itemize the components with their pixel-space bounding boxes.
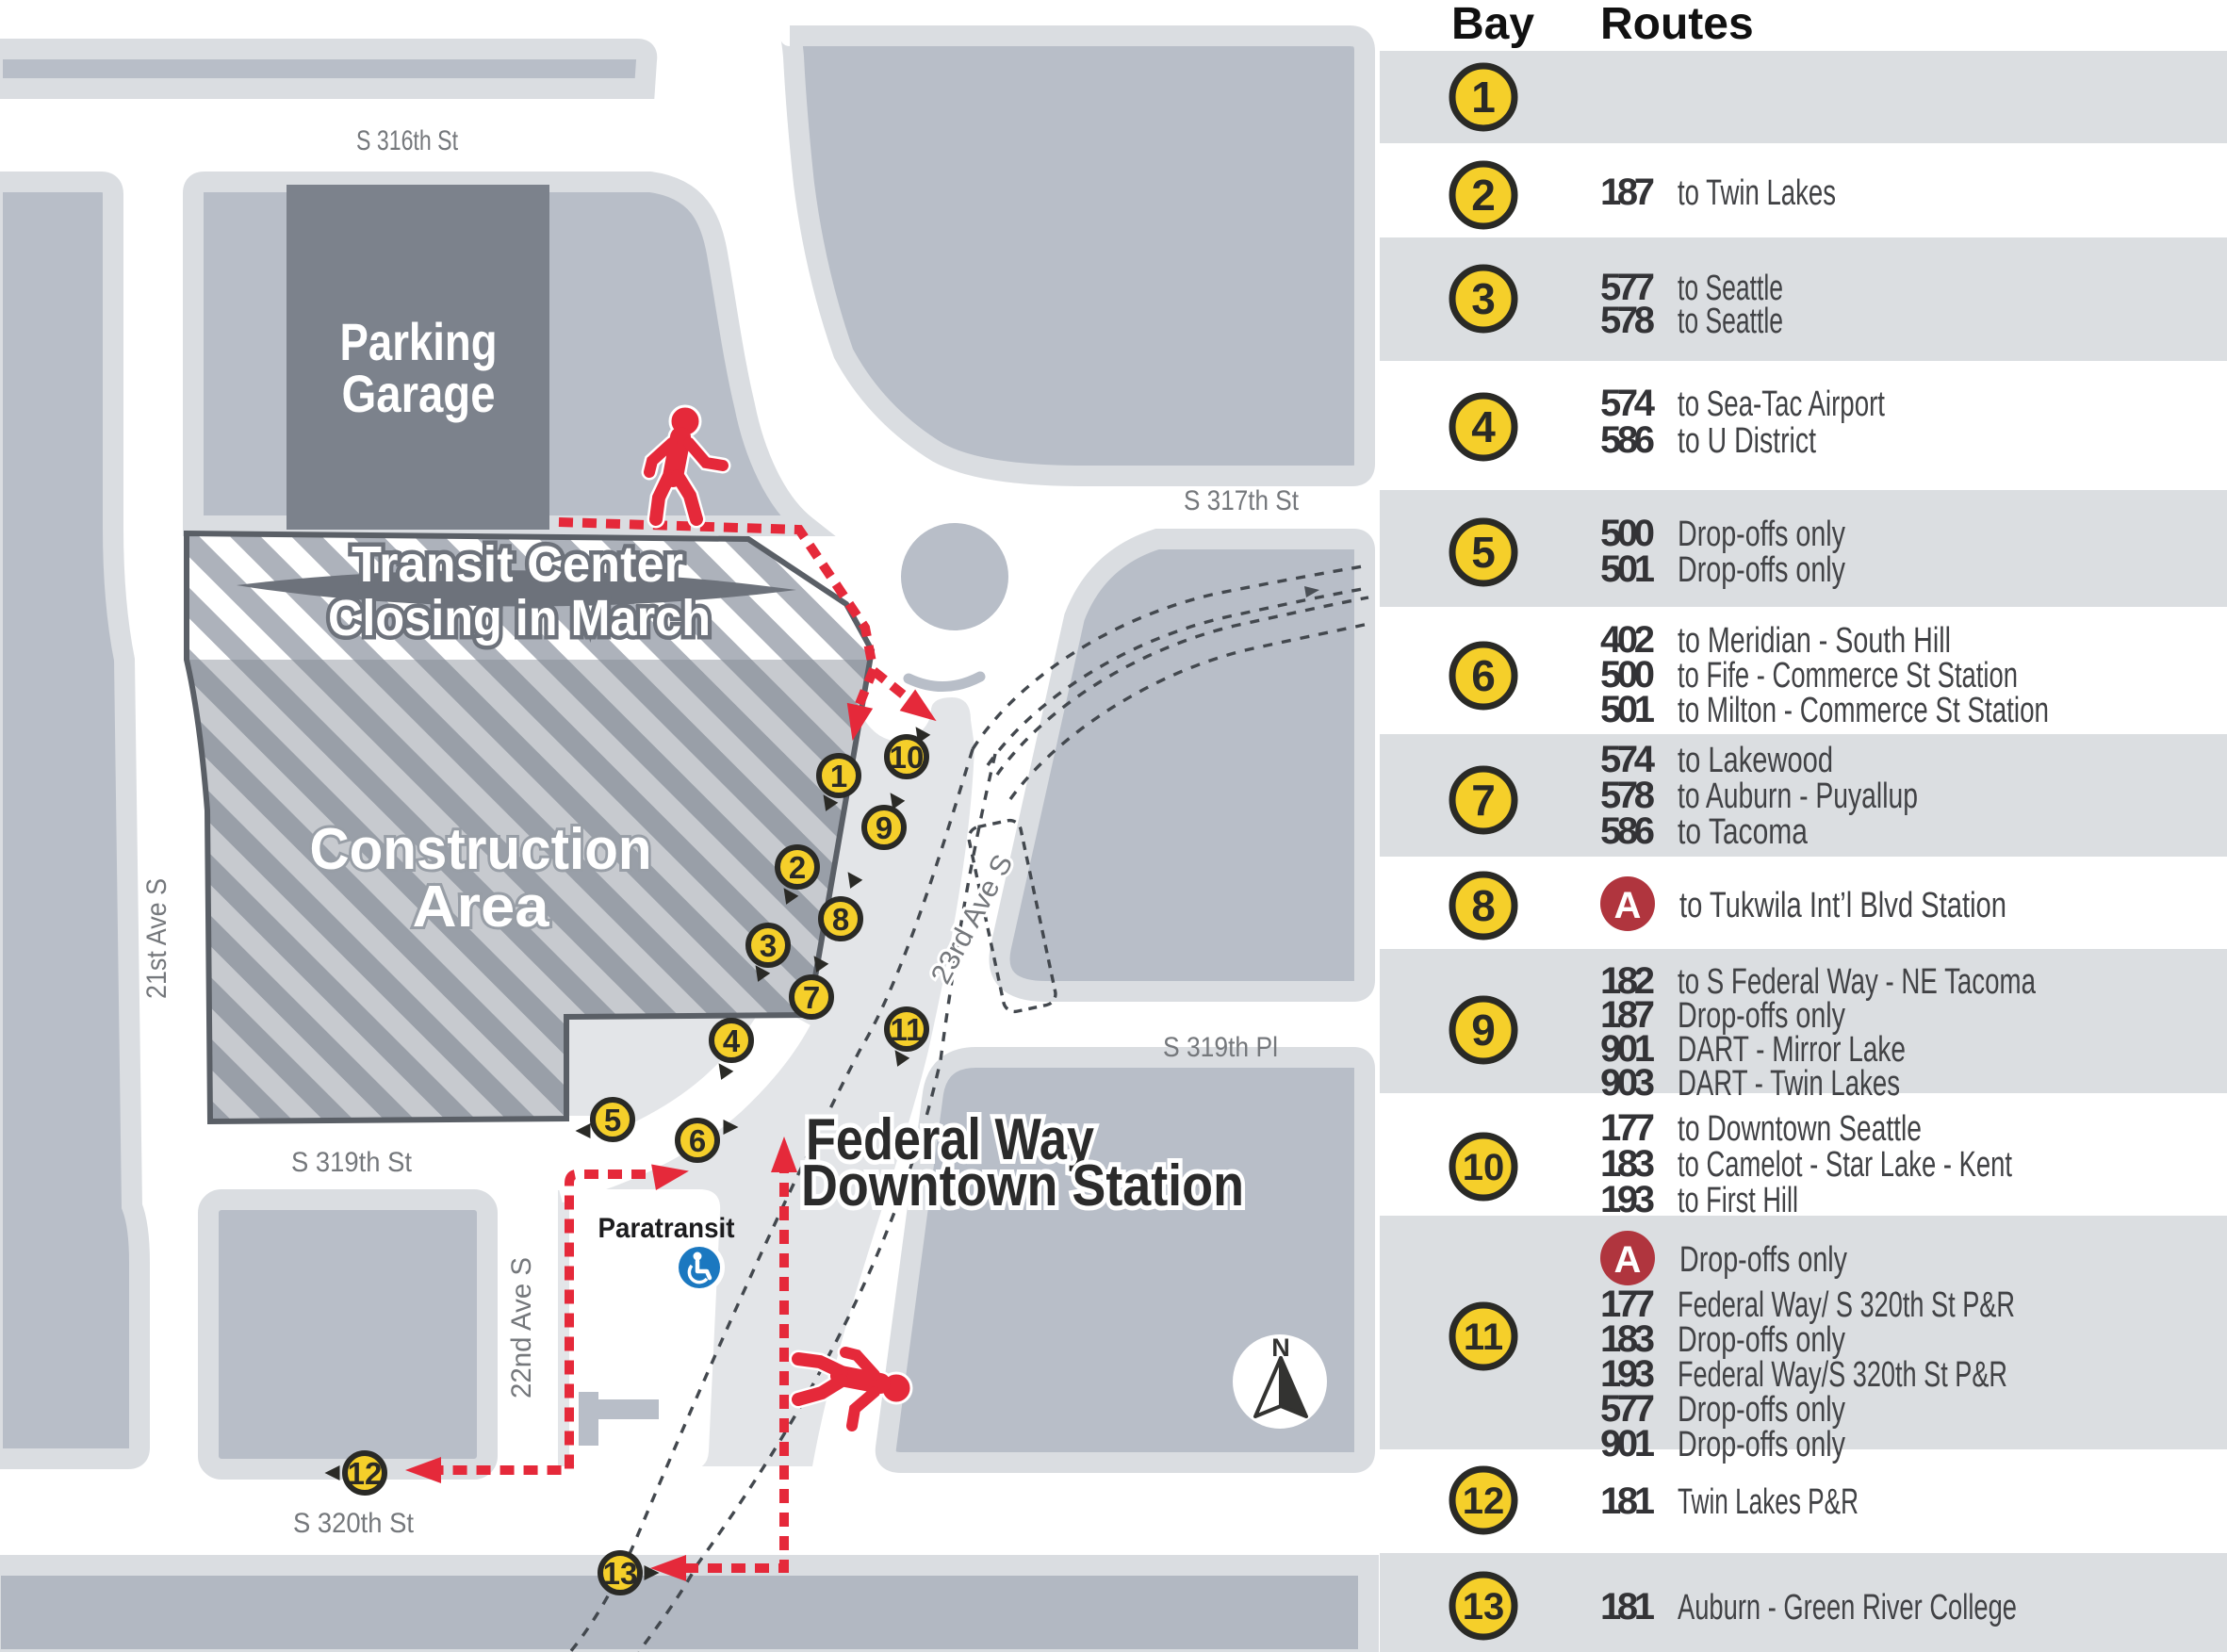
svg-text:574: 574 [1600, 383, 1656, 424]
svg-text:S 317th St: S 317th St [1184, 485, 1300, 516]
svg-text:Drop-offs only: Drop-offs only [1678, 1425, 1845, 1464]
svg-text:9: 9 [876, 810, 892, 845]
svg-text:Drop-offs only: Drop-offs only [1679, 1240, 1847, 1280]
svg-text:501: 501 [1600, 548, 1655, 590]
svg-text:to U District: to U District [1678, 421, 1816, 461]
svg-text:to Tukwila Int’l Blvd Station: to Tukwila Int’l Blvd Station [1679, 886, 2006, 925]
svg-text:S 319th Pl: S 319th Pl [1163, 1032, 1278, 1063]
svg-text:to Downtown Seattle: to Downtown Seattle [1678, 1109, 1922, 1149]
svg-text:9: 9 [1471, 1006, 1496, 1055]
svg-text:7: 7 [803, 980, 820, 1015]
svg-text:to First Hill: to First Hill [1678, 1181, 1798, 1220]
svg-text:A: A [1614, 1239, 1642, 1281]
svg-text:Parking: Parking [340, 312, 498, 371]
svg-text:to Fife - Commerce St Station: to Fife - Commerce St Station [1678, 656, 2018, 695]
svg-text:3: 3 [1471, 274, 1496, 323]
svg-text:6: 6 [689, 1123, 706, 1158]
svg-text:901: 901 [1600, 1423, 1655, 1464]
svg-text:S 320th St: S 320th St [293, 1508, 415, 1539]
svg-text:4: 4 [723, 1023, 741, 1058]
svg-text:586: 586 [1600, 419, 1655, 461]
svg-text:to Camelot - Star Lake - Kent: to Camelot - Star Lake - Kent [1678, 1145, 2012, 1185]
svg-text:S 316th St: S 316th St [356, 125, 459, 156]
svg-text:11: 11 [891, 1012, 924, 1047]
svg-text:10: 10 [890, 740, 925, 775]
svg-text:Area: Area [413, 875, 550, 940]
svg-text:5: 5 [604, 1103, 621, 1137]
svg-text:903: 903 [1600, 1062, 1655, 1104]
svg-text:10: 10 [1463, 1147, 1505, 1188]
svg-text:Paratransit: Paratransit [598, 1213, 735, 1244]
svg-text:3: 3 [760, 928, 777, 963]
svg-text:8: 8 [1471, 881, 1496, 930]
svg-text:DART - Twin Lakes: DART - Twin Lakes [1678, 1064, 1900, 1104]
svg-text:to Auburn - Puyallup: to Auburn - Puyallup [1678, 777, 1918, 816]
svg-text:A: A [1614, 885, 1642, 926]
svg-text:to Seattle: to Seattle [1678, 302, 1783, 341]
svg-text:1: 1 [1471, 73, 1496, 122]
svg-text:181: 181 [1600, 1480, 1655, 1522]
svg-text:13: 13 [1463, 1586, 1505, 1627]
svg-text:Transit Center: Transit Center [352, 536, 683, 593]
svg-text:22nd Ave S: 22nd Ave S [506, 1257, 537, 1398]
svg-text:21st Ave S: 21st Ave S [141, 878, 172, 999]
svg-text:Bay: Bay [1451, 0, 1534, 49]
svg-text:578: 578 [1600, 300, 1655, 341]
svg-text:1: 1 [830, 759, 847, 793]
svg-text:193: 193 [1600, 1179, 1655, 1220]
svg-text:Closing in March: Closing in March [328, 590, 711, 646]
svg-text:Auburn - Green River College: Auburn - Green River College [1678, 1588, 2017, 1627]
svg-text:Routes: Routes [1600, 0, 1754, 49]
svg-text:5: 5 [1471, 528, 1496, 577]
svg-text:2: 2 [789, 850, 806, 885]
svg-text:Twin Lakes P&R: Twin Lakes P&R [1678, 1482, 1859, 1522]
svg-text:12: 12 [1463, 1480, 1505, 1522]
svg-text:13: 13 [603, 1556, 638, 1591]
svg-text:7: 7 [1471, 776, 1496, 825]
svg-text:Drop-offs only: Drop-offs only [1678, 1320, 1845, 1360]
svg-text:8: 8 [832, 902, 849, 937]
svg-text:to Milton - Commerce St Statio: to Milton - Commerce St Station [1678, 691, 2049, 730]
svg-text:586: 586 [1600, 810, 1655, 852]
svg-text:12: 12 [348, 1456, 383, 1491]
svg-text:Construction: Construction [310, 817, 652, 882]
svg-text:Drop-offs only: Drop-offs only [1678, 1390, 1845, 1430]
svg-text:Downtown Station: Downtown Station [801, 1153, 1244, 1219]
svg-text:Federal Way/S 320th St P&R: Federal Way/S 320th St P&R [1678, 1355, 2007, 1395]
svg-text:Drop-offs only: Drop-offs only [1678, 550, 1845, 590]
svg-text:to Sea-Tac Airport: to Sea-Tac Airport [1678, 384, 1885, 424]
svg-text:501: 501 [1600, 689, 1655, 730]
svg-text:to Twin Lakes: to Twin Lakes [1678, 173, 1836, 213]
svg-text:Garage: Garage [342, 364, 496, 423]
svg-text:S 319th St: S 319th St [291, 1147, 413, 1178]
svg-text:Federal Way/ S 320th St P&R: Federal Way/ S 320th St P&R [1678, 1285, 2015, 1325]
svg-text:to Lakewood: to Lakewood [1678, 741, 1833, 780]
svg-text:to Tacoma: to Tacoma [1678, 812, 1809, 852]
svg-text:187: 187 [1600, 172, 1655, 213]
svg-text:4: 4 [1471, 402, 1496, 451]
svg-text:6: 6 [1471, 651, 1496, 700]
svg-text:181: 181 [1600, 1586, 1655, 1627]
svg-text:2: 2 [1471, 171, 1496, 220]
svg-text:to Meridian - South Hill: to Meridian - South Hill [1678, 621, 1951, 661]
svg-text:Drop-offs only: Drop-offs only [1678, 515, 1845, 554]
svg-text:11: 11 [1464, 1317, 1503, 1358]
